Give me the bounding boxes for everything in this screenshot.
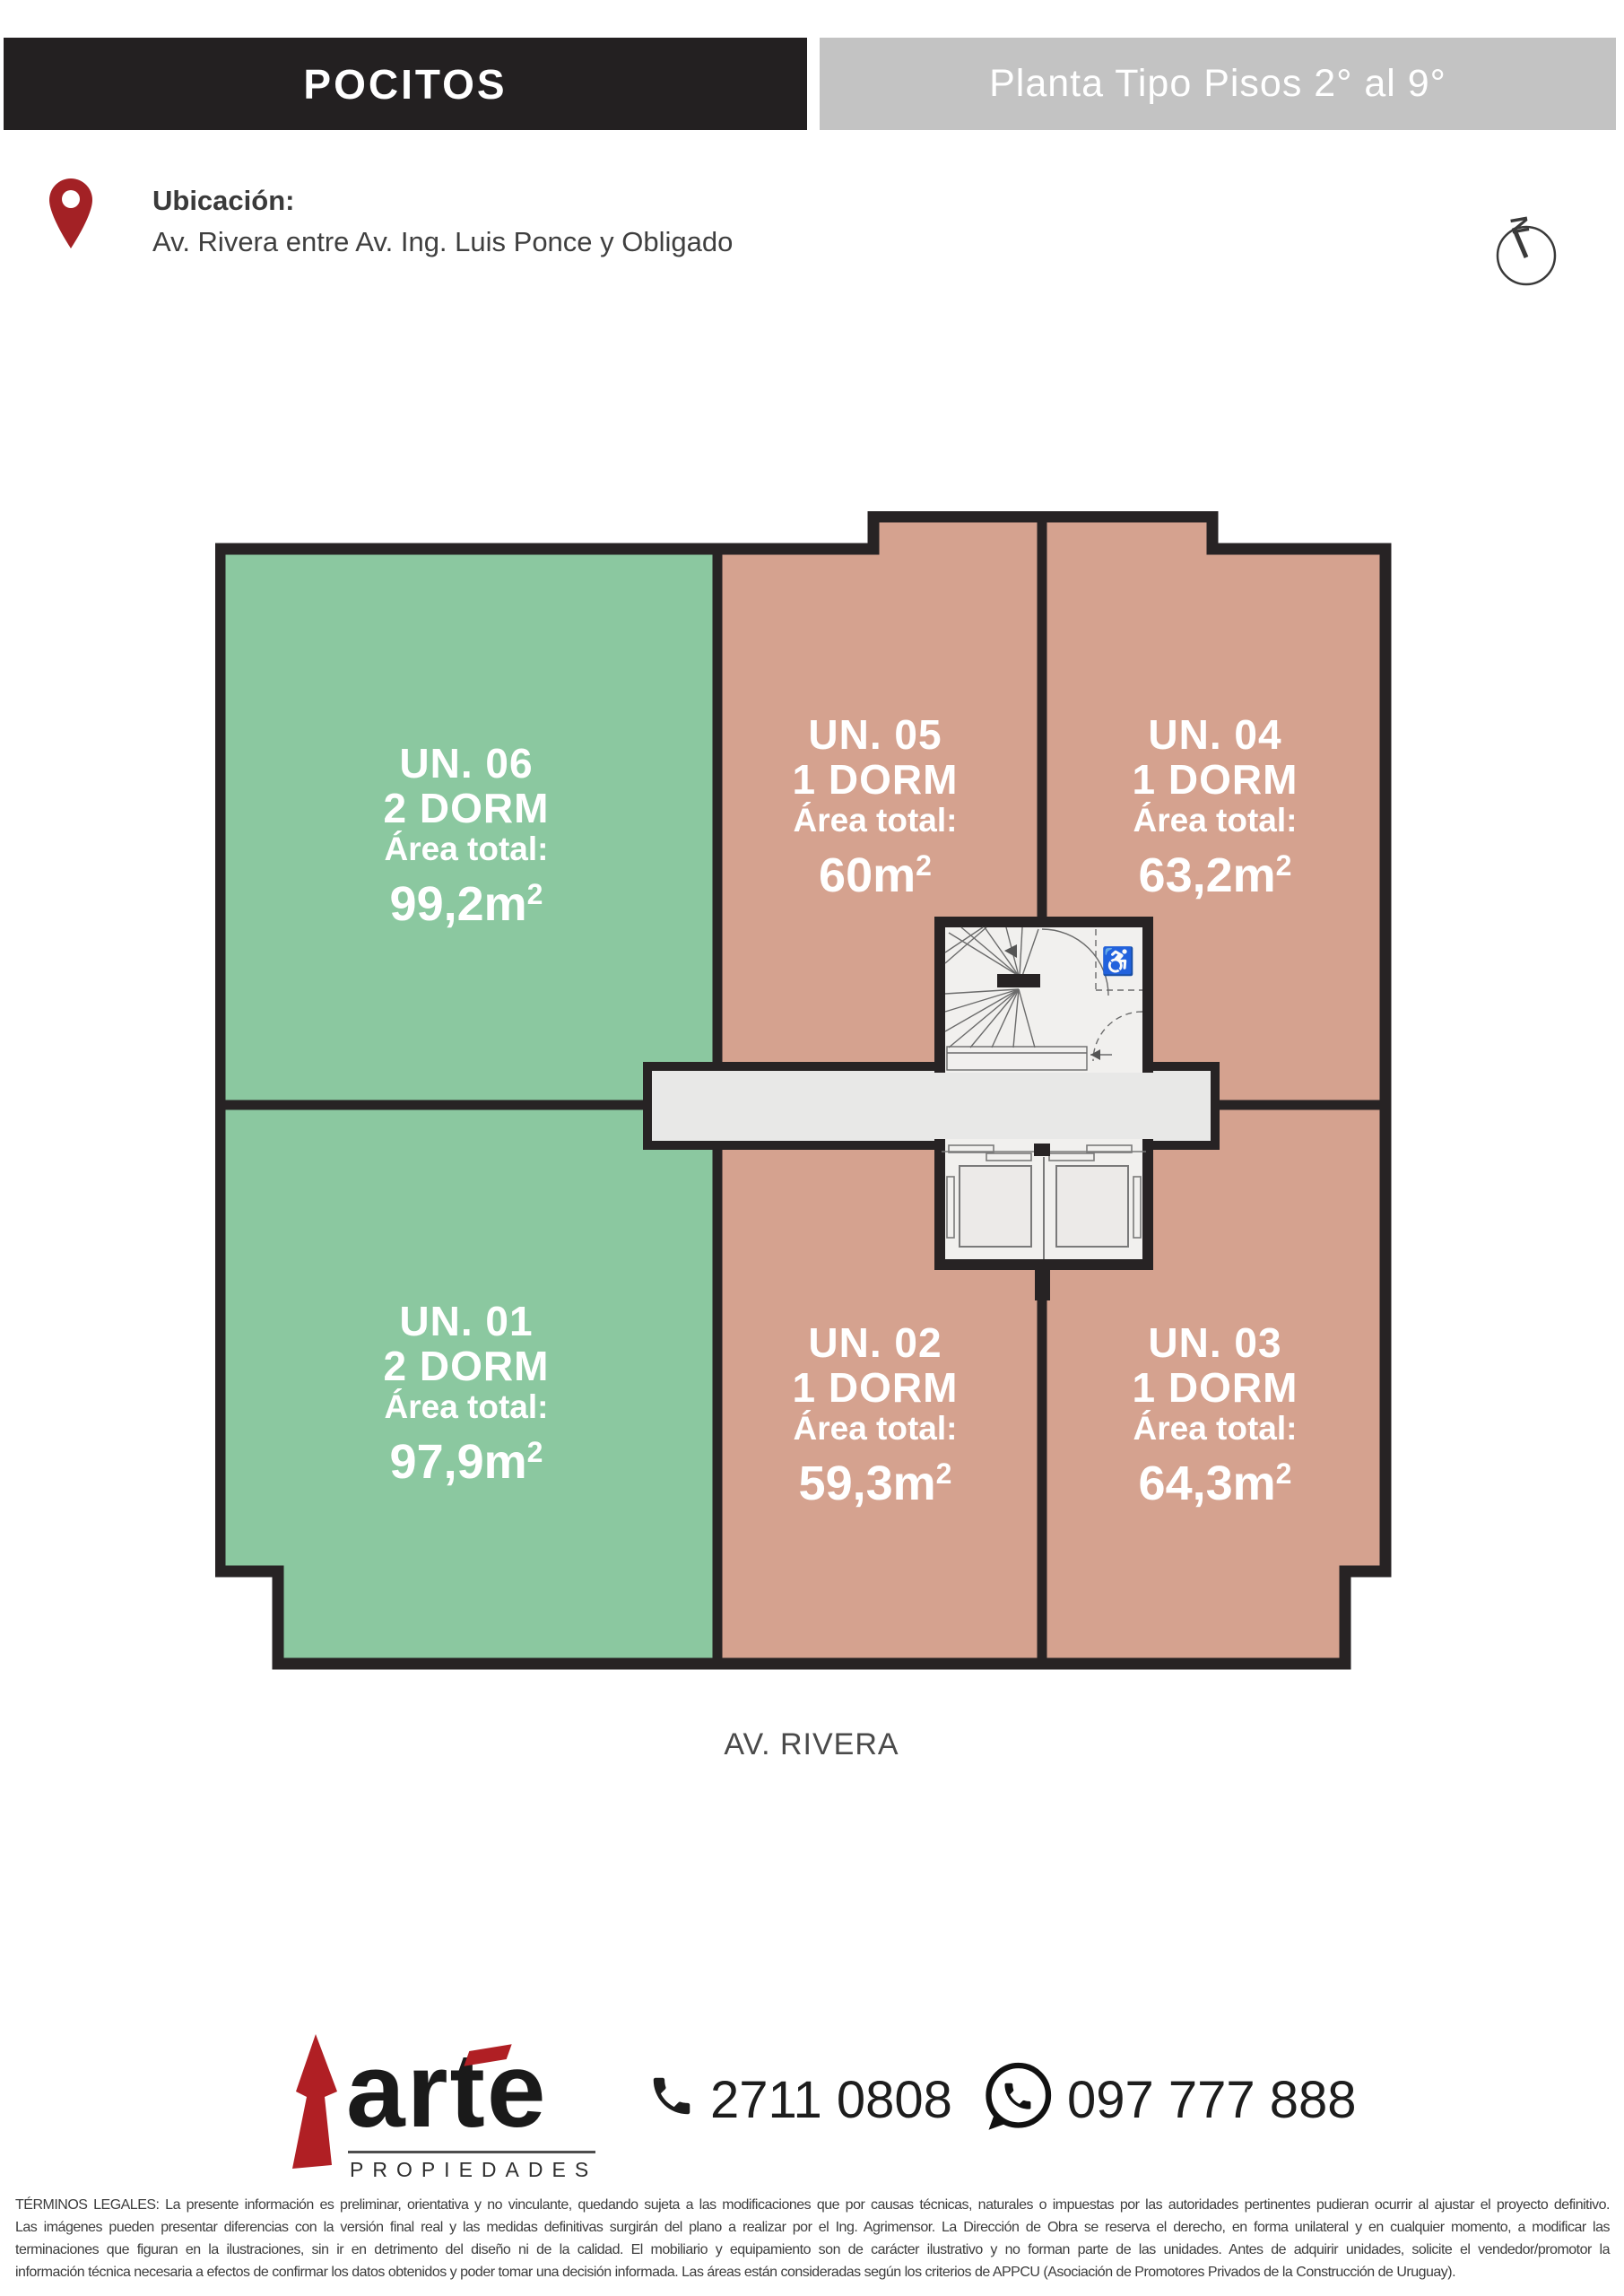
phone-number: 2711 0808 bbox=[710, 2070, 952, 2130]
location-address: Av. Rivera entre Av. Ing. Luis Ponce y O… bbox=[152, 226, 733, 258]
map-pin-icon bbox=[49, 178, 92, 248]
header-plan-title: Planta Tipo Pisos 2° al 9° bbox=[820, 38, 1616, 130]
location-label: Ubicación: bbox=[152, 185, 294, 217]
unit-area-value: 64,3m bbox=[1139, 1457, 1276, 1510]
unit-area-value: 60m bbox=[819, 848, 916, 902]
legal-line-1: TÉRMINOS LEGALES: La presente informació… bbox=[15, 2194, 1610, 2216]
unit-area-value: 63,2m bbox=[1139, 848, 1276, 902]
unit-01-label: UN. 01 2 DORM Área total: 97,9m2 bbox=[287, 1299, 646, 1488]
unit-name: UN. 05 bbox=[708, 712, 1042, 757]
unit-dorms: 2 DORM bbox=[287, 786, 646, 831]
brand-arrow-icon bbox=[285, 2034, 350, 2169]
header-location-tag: POCITOS bbox=[4, 38, 807, 130]
unit-04-label: UN. 04 1 DORM Área total: 63,2m2 bbox=[1040, 712, 1390, 901]
unit-05-label: UN. 05 1 DORM Área total: 60m2 bbox=[708, 712, 1042, 901]
unit-area-sup: 2 bbox=[527, 878, 543, 910]
flyer-page: POCITOS Planta Tipo Pisos 2° al 9° Ubica… bbox=[0, 0, 1624, 2296]
unit-area-label: Área total: bbox=[708, 1410, 1042, 1448]
stair-landing-bar bbox=[997, 974, 1040, 987]
wheelchair-icon: ♿ bbox=[1101, 945, 1134, 977]
plan-title-text: Planta Tipo Pisos 2° al 9° bbox=[989, 62, 1446, 106]
unit-area-label: Área total: bbox=[287, 1388, 646, 1426]
whatsapp-number: 097 777 888 bbox=[1067, 2070, 1357, 2130]
unit-area-value: 97,9m bbox=[390, 1435, 527, 1489]
unit-area-sup: 2 bbox=[916, 849, 932, 882]
unit-dorms: 2 DORM bbox=[287, 1344, 646, 1388]
location-tag-text: POCITOS bbox=[303, 60, 507, 109]
unit-name: UN. 06 bbox=[287, 741, 646, 786]
unit-area-sup: 2 bbox=[1276, 849, 1292, 882]
unit-dorms: 1 DORM bbox=[708, 757, 1042, 802]
phone-icon bbox=[647, 2072, 696, 2120]
unit-area-sup: 2 bbox=[936, 1457, 952, 1490]
compass-north-icon: N bbox=[1471, 179, 1587, 296]
legal-line-3: terminaciones que figuran en la ilustrac… bbox=[15, 2239, 1610, 2261]
unit-area-sup: 2 bbox=[1276, 1457, 1292, 1490]
legal-line-2: Las imágenes pueden presentar diferencia… bbox=[15, 2216, 1610, 2239]
brand-name: arte bbox=[346, 2038, 547, 2144]
unit-dorms: 1 DORM bbox=[708, 1365, 1042, 1410]
street-label: AV. RIVERA bbox=[632, 1727, 991, 1762]
unit-02-label: UN. 02 1 DORM Área total: 59,3m2 bbox=[708, 1320, 1042, 1509]
unit-area-label: Área total: bbox=[708, 802, 1042, 839]
unit-name: UN. 02 bbox=[708, 1320, 1042, 1365]
brand-rule bbox=[348, 2151, 595, 2153]
unit-area-label: Área total: bbox=[1040, 802, 1390, 839]
unit-06-label: UN. 06 2 DORM Área total: 99,2m2 bbox=[287, 741, 646, 930]
unit-03-label: UN. 03 1 DORM Área total: 64,3m2 bbox=[1040, 1320, 1390, 1509]
compass-letter: N bbox=[1505, 214, 1534, 236]
brand-subtitle: PROPIEDADES bbox=[350, 2158, 597, 2182]
unit-name: UN. 03 bbox=[1040, 1320, 1390, 1365]
corridor-passage bbox=[933, 1073, 1155, 1139]
legal-line-4: información técnica necesaria a efectos … bbox=[15, 2261, 1610, 2283]
unit-area-label: Área total: bbox=[1040, 1410, 1390, 1448]
unit-area-sup: 2 bbox=[527, 1436, 543, 1468]
unit-dorms: 1 DORM bbox=[1040, 757, 1390, 802]
unit-dorms: 1 DORM bbox=[1040, 1365, 1390, 1410]
unit-area-value: 59,3m bbox=[799, 1457, 936, 1510]
elevator-left-cab bbox=[960, 1166, 1031, 1247]
unit-area-label: Área total: bbox=[287, 831, 646, 868]
unit-area-value: 99,2m bbox=[390, 877, 527, 931]
unit-name: UN. 04 bbox=[1040, 712, 1390, 757]
elevator-right-cab bbox=[1056, 1166, 1128, 1247]
legal-terms: TÉRMINOS LEGALES: La presente informació… bbox=[15, 2194, 1610, 2283]
whatsapp-icon bbox=[979, 2059, 1055, 2135]
unit-name: UN. 01 bbox=[287, 1299, 646, 1344]
